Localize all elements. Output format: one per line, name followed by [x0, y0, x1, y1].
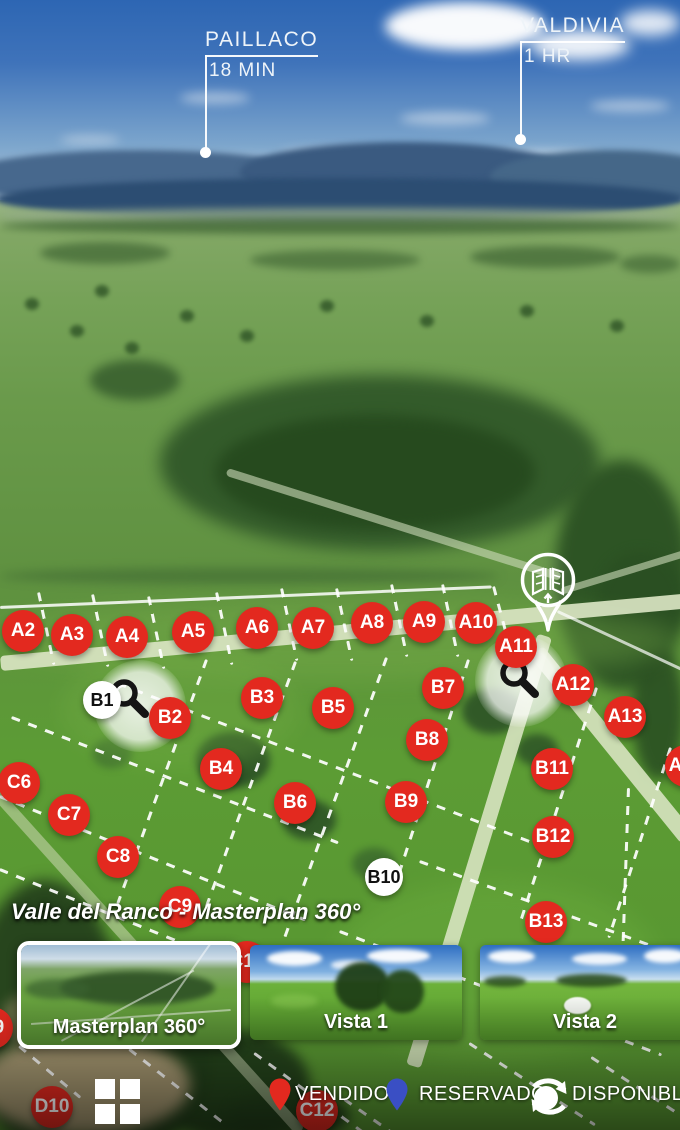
lot-marker-B1[interactable]: B1 [83, 681, 121, 719]
distance-label-paillaco: PAILLACO 18 MIN [205, 28, 318, 82]
legend-label-vendido: VENDIDO [295, 1083, 390, 1106]
lot-marker-B4[interactable]: B4 [200, 748, 242, 790]
lot-marker-A10[interactable]: A10 [455, 602, 497, 644]
lot-marker-C6[interactable]: C6 [0, 762, 40, 804]
travel-time: 1 HR [520, 43, 625, 68]
lot-marker-B3[interactable]: B3 [241, 677, 283, 719]
lot-marker-A5[interactable]: A5 [172, 611, 214, 653]
travel-time: 18 MIN [205, 57, 318, 82]
lot-marker-B8[interactable]: B8 [406, 719, 448, 761]
disponible-rotate-360-icon [525, 1072, 573, 1120]
thumbnail-vista-1[interactable]: Vista 1 [250, 945, 462, 1040]
lot-marker-B5[interactable]: B5 [312, 687, 354, 729]
lot-marker-A13[interactable]: A13 [604, 696, 646, 738]
thumbnail-label: Vista 1 [250, 1011, 462, 1034]
lot-marker-A7[interactable]: A7 [292, 607, 334, 649]
lot-marker-B9[interactable]: B9 [385, 781, 427, 823]
paillaco-pointer-line [205, 55, 207, 149]
thumbnail-label: Vista 2 [480, 1011, 680, 1034]
thumbnail-label: Masterplan 360° [21, 1016, 237, 1039]
thumbnail-vista-2[interactable]: Vista 2 [480, 945, 680, 1040]
city-name: VALDIVIA [520, 14, 625, 43]
lot-marker-B2[interactable]: B2 [149, 697, 191, 739]
lot-boundary-dash [607, 747, 672, 938]
lot-marker-B10[interactable]: B10 [365, 858, 403, 896]
lot-boundary-dash [621, 788, 630, 946]
lot-marker-A8[interactable]: A8 [351, 602, 393, 644]
lot-marker-C7[interactable]: C7 [48, 794, 90, 836]
lot-marker-B12[interactable]: B12 [532, 816, 574, 858]
lot-boundary-dash [147, 596, 165, 669]
lot-marker-A9[interactable]: A9 [403, 601, 445, 643]
distance-label-valdivia: VALDIVIA 1 HR [520, 14, 625, 68]
valdivia-pointer-dot [515, 134, 526, 145]
reservado-pin-icon [385, 1077, 409, 1112]
lot-marker-A6[interactable]: A6 [236, 607, 278, 649]
lot-marker-A12[interactable]: A12 [552, 664, 594, 706]
lot-marker-C8[interactable]: C8 [97, 836, 139, 878]
lot-marker-B13[interactable]: B13 [525, 901, 567, 943]
valdivia-pointer-line [520, 41, 522, 135]
city-name: PAILLACO [205, 28, 318, 57]
thumbnail-masterplan-360[interactable]: Masterplan 360° [17, 941, 241, 1049]
lot-marker-D10[interactable]: D10 [31, 1086, 73, 1128]
lot-marker-A11[interactable]: A11 [495, 626, 537, 668]
lot-boundary-dash [128, 1048, 224, 1124]
paillaco-pointer-dot [200, 147, 211, 158]
lot-boundary-dash [215, 592, 233, 665]
vendido-pin-icon [268, 1077, 292, 1112]
entrance-360-pin-icon[interactable] [517, 551, 579, 635]
lot-marker-B6[interactable]: B6 [274, 782, 316, 824]
masterplan-viewer: PAILLACO 18 MIN VALDIVIA 1 HR A2A3A4A5A6… [0, 0, 680, 1130]
lot-marker-B11[interactable]: B11 [531, 748, 573, 790]
lot-marker-B7[interactable]: B7 [422, 667, 464, 709]
lot-marker-A3[interactable]: A3 [51, 614, 93, 656]
page-title: Valle del Ranco - Masterplan 360° [11, 899, 360, 925]
lot-marker-A2[interactable]: A2 [2, 610, 44, 652]
layout-grid-icon[interactable] [95, 1079, 140, 1124]
legend-label-disponible: DISPONIBLE [572, 1083, 680, 1106]
lot-marker-A4[interactable]: A4 [106, 616, 148, 658]
